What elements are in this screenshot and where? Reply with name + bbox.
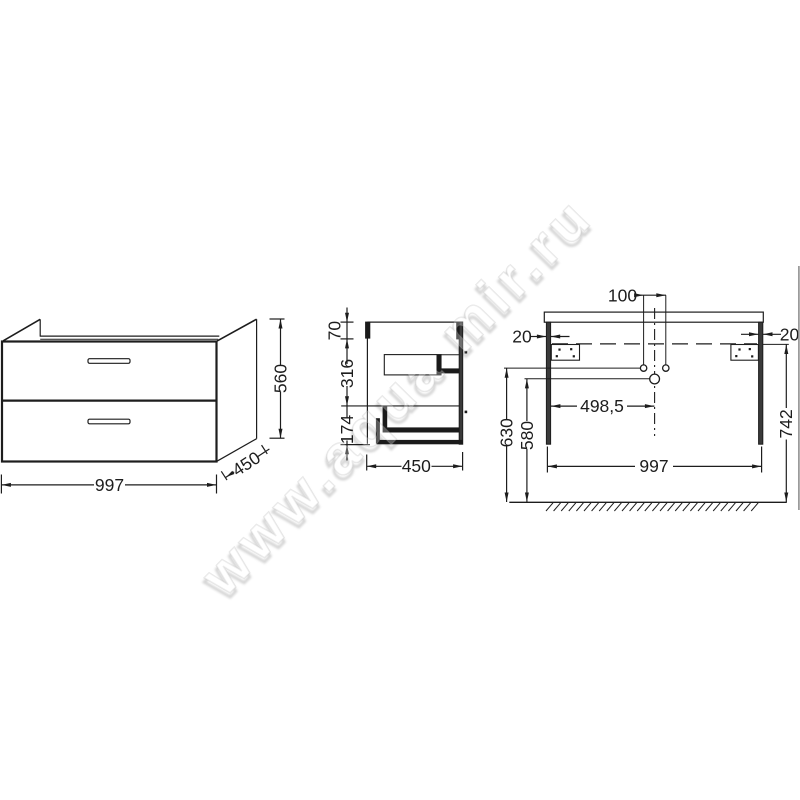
svg-text:100: 100	[608, 285, 637, 305]
svg-text:997: 997	[639, 456, 668, 476]
svg-text:580: 580	[517, 421, 537, 450]
svg-text:742: 742	[776, 409, 796, 438]
svg-text:70: 70	[325, 321, 345, 341]
svg-text:560: 560	[271, 364, 291, 393]
svg-text:316: 316	[337, 359, 357, 388]
svg-text:498,5: 498,5	[580, 396, 624, 416]
svg-text:20: 20	[780, 325, 800, 345]
svg-text:997: 997	[95, 475, 124, 495]
svg-text:20: 20	[512, 327, 532, 347]
svg-text:630: 630	[497, 418, 517, 447]
svg-text:450: 450	[402, 456, 431, 476]
svg-text:www.aquamir.ru: www.aquamir.ru	[189, 184, 606, 607]
